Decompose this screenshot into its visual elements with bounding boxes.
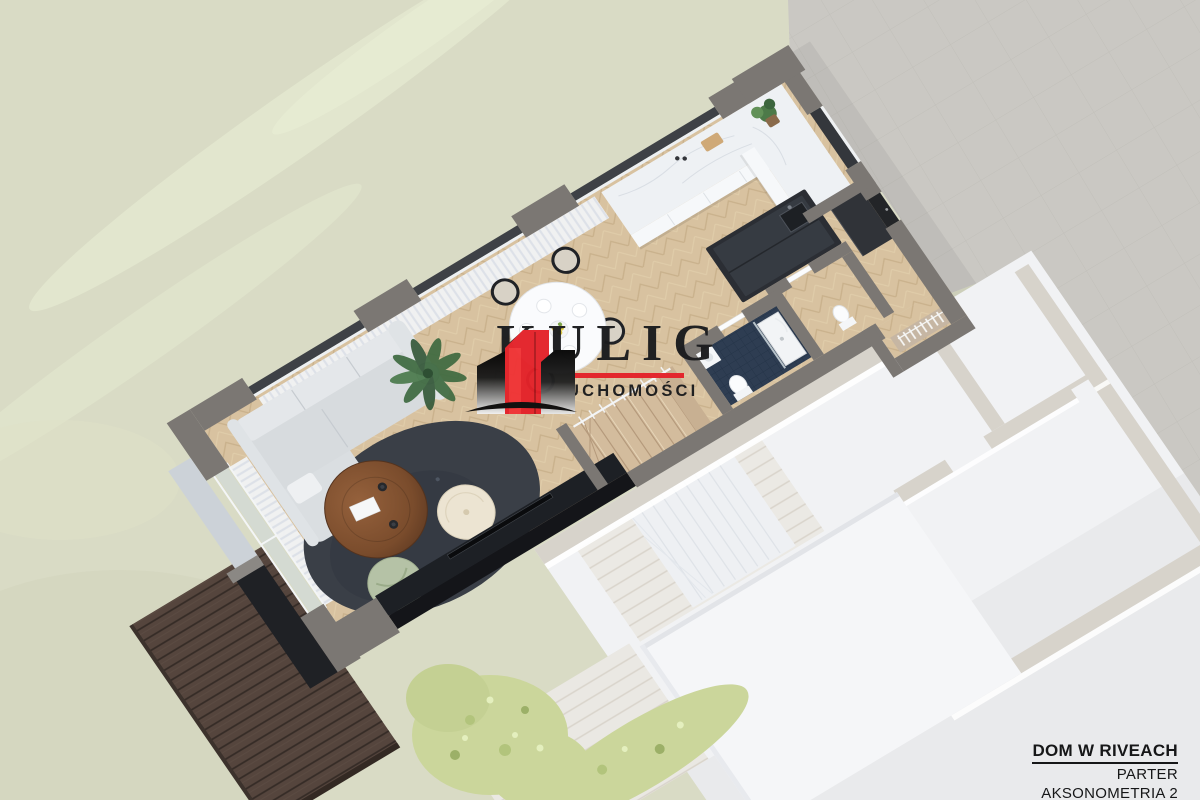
project-caption: DOM W RIVEACH PARTER AKSONOMETRIA 2 [1032, 741, 1178, 802]
floorplan-scene [0, 0, 1200, 800]
caption-view: AKSONOMETRIA 2 [1032, 785, 1178, 802]
caption-floor: PARTER [1032, 766, 1178, 783]
caption-title: DOM W RIVEACH [1032, 741, 1178, 764]
floorplan-render-page: KULIG NIERUCHOMOŚCI DOM W RIVEACH PARTER… [0, 0, 1200, 800]
